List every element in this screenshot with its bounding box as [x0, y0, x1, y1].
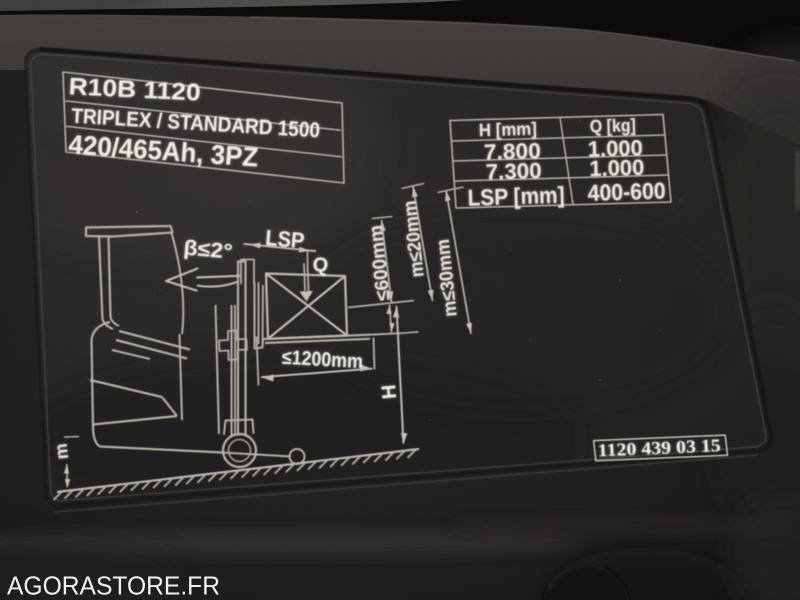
svg-text:AGORASTORE.FR: AGORASTORE.FR: [7, 573, 220, 600]
